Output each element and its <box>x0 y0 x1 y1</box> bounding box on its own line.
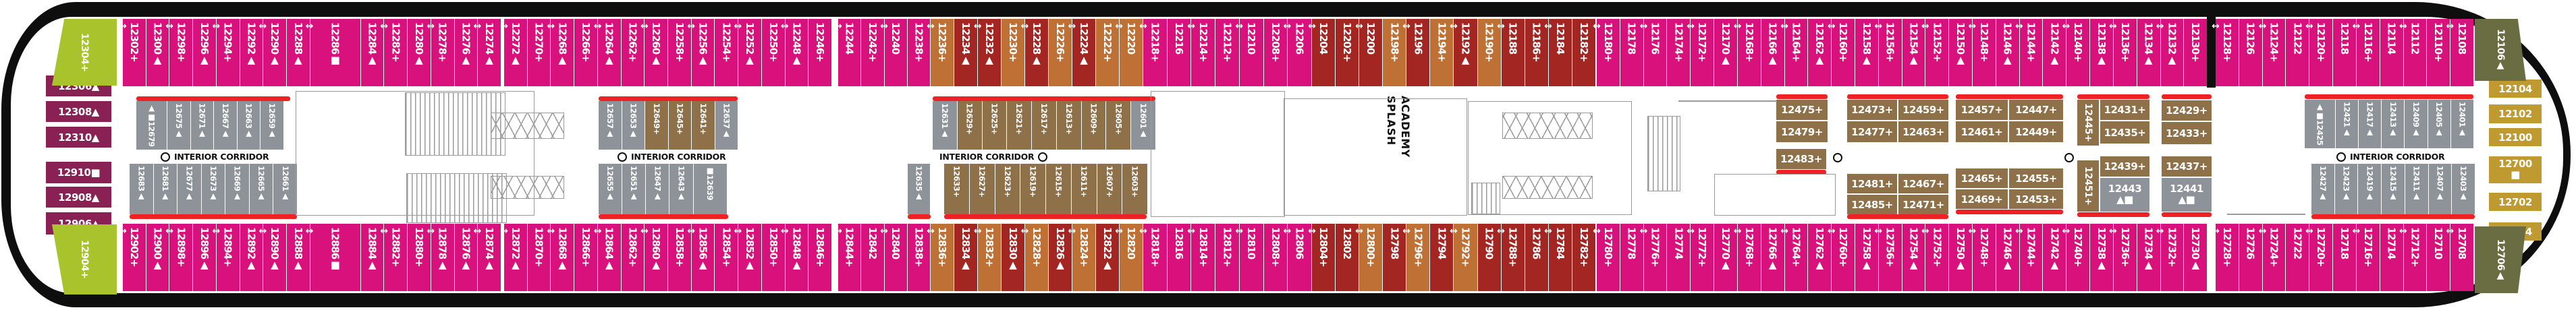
cabin-12108[interactable]: 12108 <box>2450 19 2473 86</box>
cabin-12677[interactable]: 12677▲ <box>177 164 201 214</box>
cabin-12184[interactable]: 12184 <box>1549 19 1572 86</box>
cabin-12613[interactable]: 12613+ <box>1057 101 1081 150</box>
cabin-12481[interactable]: 12481+ <box>1847 174 1897 193</box>
cabin-12421[interactable]: 12421▲ <box>2336 100 2358 148</box>
cabin-12896[interactable]: 12896▲ <box>193 224 216 291</box>
cabin-12170[interactable]: 12170▲ <box>1714 19 1737 86</box>
cabin-12194[interactable]: 12194+ <box>1430 19 1453 86</box>
cabin-12794[interactable]: 12794 <box>1430 224 1453 291</box>
cabin-12776[interactable]: 12776+ <box>1644 224 1667 291</box>
cabin-12190[interactable]: 12190+ <box>1478 19 1501 86</box>
cabin-12134[interactable]: 12134▲ <box>2137 19 2160 86</box>
cabin-12224[interactable]: 12224▲ <box>1072 19 1095 86</box>
cabin-12260[interactable]: 12260▲ <box>645 19 667 86</box>
cabin-12812[interactable]: 12812+ <box>1215 224 1239 291</box>
cabin-12667[interactable]: 12667▲ <box>214 101 237 150</box>
cabin-12782[interactable]: 12782+ <box>1572 224 1595 291</box>
cabin-12629[interactable]: 12629+ <box>958 101 982 150</box>
cabin-number: 12625+ <box>989 101 999 135</box>
cabin-12182[interactable]: 12182+ <box>1572 19 1595 86</box>
cabin-12431[interactable]: 12431+ <box>2100 100 2149 120</box>
cabin-12485[interactable]: 12485+ <box>1847 195 1897 214</box>
cabin-12258[interactable]: 12258+ <box>668 19 691 86</box>
cabin-12818[interactable]: 12818+ <box>1143 224 1167 291</box>
cabin-12218[interactable]: 12218+ <box>1143 19 1167 86</box>
cabin-12663[interactable]: 12663▲ <box>238 101 261 150</box>
cabin-12878[interactable]: 12878▲ <box>431 224 454 291</box>
cabin-12730[interactable]: 12730▲ <box>2184 224 2207 291</box>
cabin-12774[interactable]: 12774 <box>1667 224 1690 291</box>
cabin-12453[interactable]: 12453+ <box>2009 189 2063 209</box>
cabin-12766[interactable]: 12766▲ <box>1761 224 1784 291</box>
cabin-12178[interactable]: 12178 <box>1620 19 1643 86</box>
cabin-12657[interactable]: 12657▲ <box>599 101 622 150</box>
cabin-12643[interactable]: 12643▲ <box>669 164 692 214</box>
cabin-12764[interactable]: 12764+ <box>1785 224 1808 291</box>
cabin-12144[interactable]: 12144+ <box>2020 19 2043 86</box>
cabin-12300[interactable]: 12300▲ <box>146 19 169 86</box>
cabin-12204[interactable]: 12204 <box>1312 19 1335 86</box>
cabin-12834[interactable]: 12834▲ <box>954 224 977 291</box>
cabin-12451[interactable]: 12451+ <box>2077 160 2099 212</box>
cabin-12756[interactable]: 12756+ <box>1879 224 1902 291</box>
cabin-12810[interactable]: 12810 <box>1240 224 1263 291</box>
cabin-12814[interactable]: 12814+ <box>1191 224 1215 291</box>
cabin-12407[interactable]: 12407▲ <box>2429 164 2452 214</box>
cabin-12888[interactable]: 12888▲ <box>287 224 310 291</box>
cabin-12718[interactable]: 12718 <box>2333 224 2356 291</box>
cabin-12186[interactable]: 12186+ <box>1525 19 1548 86</box>
cabin-12423[interactable]: 12423▲ <box>2335 164 2358 214</box>
cabin-12732[interactable]: 12732+ <box>2161 224 2184 291</box>
cabin-12126[interactable]: 12126 <box>2239 19 2262 86</box>
cabin-12246[interactable]: 12246+ <box>809 19 831 86</box>
corridor-red-bar <box>2305 94 2473 99</box>
cabin-12822[interactable]: 12822▲ <box>1096 224 1119 291</box>
cabin-number: 12401▲ <box>2457 100 2467 136</box>
cabin-12437[interactable]: 12437+ <box>2162 156 2212 177</box>
cabin-12708[interactable]: 12708 <box>2450 224 2473 291</box>
cabin-12136[interactable]: 12136+ <box>2114 19 2137 86</box>
cabin-12902[interactable]: 12902+ <box>123 224 146 291</box>
cabin-12268[interactable]: 12268▲ <box>551 19 574 86</box>
cabin-12786[interactable]: 12786 <box>1525 224 1548 291</box>
cabin-12892[interactable]: 12892▲ <box>240 224 263 291</box>
cabin-12796[interactable]: 12796+ <box>1406 224 1429 291</box>
cabin-12866[interactable]: 12866+ <box>574 224 597 291</box>
cabin-12471[interactable]: 12471+ <box>1898 195 1948 214</box>
cabin-12710[interactable]: 12710 <box>2427 224 2450 291</box>
cabin-12230[interactable]: 12230+ <box>1002 19 1024 86</box>
cabin-12884[interactable]: 12884▲ <box>361 224 384 291</box>
cabin-12457[interactable]: 12457+ <box>1956 100 2008 120</box>
cabin-12748[interactable]: 12748+ <box>1973 224 1996 291</box>
cabin-12872[interactable]: 12872▲ <box>504 224 527 291</box>
cabin-12172[interactable]: 12172+ <box>1691 19 1714 86</box>
cabin-12196[interactable]: 12196 <box>1406 19 1429 86</box>
cabin-12128[interactable]: 12128+ <box>2216 19 2239 86</box>
cabin-12605[interactable]: 12605+ <box>1106 101 1130 150</box>
cabin-12724[interactable]: 12724+ <box>2263 224 2286 291</box>
cabin-12198[interactable]: 12198+ <box>1383 19 1406 86</box>
cabin-12858[interactable]: 12858+ <box>668 224 691 291</box>
cabin-12762[interactable]: 12762▲ <box>1808 224 1831 291</box>
cabin-12270[interactable]: 12270+ <box>528 19 551 86</box>
cabin-12800[interactable]: 12800+ <box>1359 224 1382 291</box>
cabin-12840[interactable]: 12840 <box>885 224 907 291</box>
cabin-12780[interactable]: 12780+ <box>1597 224 1620 291</box>
cabin-12140[interactable]: 12140+ <box>2066 19 2089 86</box>
cabin-12617[interactable]: 12617+ <box>1032 101 1056 150</box>
cabin-12280[interactable]: 12280▲ <box>408 19 431 86</box>
cabin-12900[interactable]: 12900▲ <box>146 224 169 291</box>
cabin-12110[interactable]: 12110+ <box>2427 19 2450 86</box>
cabin-12802[interactable]: 12802 <box>1336 224 1359 291</box>
cabin-12467[interactable]: 12467+ <box>1898 174 1948 193</box>
cabin-12256[interactable]: 12256▲ <box>692 19 715 86</box>
cabin-12754[interactable]: 12754▲ <box>1902 224 1925 291</box>
cabin-12148[interactable]: 12148+ <box>1973 19 1996 86</box>
cabin-12874[interactable]: 12874▲ <box>478 224 501 291</box>
cabin-12302[interactable]: 12302+ <box>123 19 146 86</box>
cabin-12104[interactable]: 12104 <box>2489 80 2542 98</box>
cabin-12653[interactable]: 12653▲ <box>622 101 645 150</box>
cabin-12214[interactable]: 12214+ <box>1191 19 1215 86</box>
cabin-12433[interactable]: 12433+ <box>2162 122 2212 144</box>
cabin-12760[interactable]: 12760+ <box>1832 224 1855 291</box>
cabin-12310[interactable]: 12310▲ <box>46 127 111 148</box>
cabin-12862[interactable]: 12862+ <box>622 224 645 291</box>
cabin-12308[interactable]: 12308▲ <box>46 101 111 122</box>
cabin-12469[interactable]: 12469+ <box>1956 189 2008 209</box>
cabin-12106[interactable]: 12106▲ <box>2475 19 2526 81</box>
corridor-red-bar <box>1956 210 2063 214</box>
cabin-12868[interactable]: 12868▲ <box>551 224 574 291</box>
cabin-12122[interactable]: 12122 <box>2286 19 2309 86</box>
cabin-12860[interactable]: 12860▲ <box>645 224 667 291</box>
cabin-12228[interactable]: 12228▲ <box>1025 19 1048 86</box>
cabin-12240[interactable]: 12240 <box>885 19 907 86</box>
cabin-12645[interactable]: 12645+ <box>669 101 692 150</box>
cabin-12675[interactable]: 12675▲ <box>167 101 190 150</box>
cabin-12455[interactable]: 12455+ <box>2009 168 2063 188</box>
cabin-12607[interactable]: 12607+ <box>1097 164 1122 214</box>
cabin-12292[interactable]: 12292▲ <box>240 19 263 86</box>
cabin-12405[interactable]: 12405▲ <box>2428 100 2450 148</box>
cabin-12734[interactable]: 12734▲ <box>2137 224 2160 291</box>
cabin-12758[interactable]: 12758▲ <box>1855 224 1878 291</box>
cabin-12647[interactable]: 12647▲ <box>646 164 669 214</box>
cabin-12679[interactable]: ▲■12679 <box>136 101 167 150</box>
cabin-12142[interactable]: 12142▲ <box>2043 19 2066 86</box>
cabin-12100[interactable]: 12100 <box>2489 128 2542 146</box>
cabin-12282[interactable]: 12282+ <box>384 19 407 86</box>
cabin-12651[interactable]: 12651▲ <box>622 164 645 214</box>
cabin-12908[interactable]: 12908▲ <box>46 187 111 208</box>
cabin-12254[interactable]: 12254+ <box>715 19 738 86</box>
cabin-12459[interactable]: 12459+ <box>1898 100 1948 120</box>
cabin-12435[interactable]: 12435+ <box>2100 121 2149 144</box>
cabin-12641[interactable]: 12641+ <box>692 101 715 150</box>
cabin-12188[interactable]: 12188 <box>1502 19 1525 86</box>
cabin-12156[interactable]: 12156+ <box>1879 19 1902 86</box>
cabin-12838[interactable]: 12838+ <box>908 224 930 291</box>
cabin-12206[interactable]: 12206 <box>1288 19 1311 86</box>
cabin-12200[interactable]: 12200 <box>1359 19 1382 86</box>
cabin-12631[interactable]: 12631▲ <box>933 101 957 150</box>
cabin-12124[interactable]: 12124+ <box>2263 19 2286 86</box>
cabin-12250[interactable]: 12250+ <box>762 19 785 86</box>
cabin-12669[interactable]: 12669▲ <box>225 164 249 214</box>
cabin-12138[interactable]: 12138▲ <box>2090 19 2113 86</box>
cabin-12483[interactable]: 12483+ <box>1776 149 1826 169</box>
cabin-12894[interactable]: 12894+ <box>217 224 240 291</box>
cabin-12210[interactable]: 12210 <box>1240 19 1263 86</box>
cabin-number: 12766▲ <box>1767 224 1779 270</box>
cabin-12768[interactable]: 12768+ <box>1738 224 1761 291</box>
cabin-12439[interactable]: 12439+ <box>2100 156 2149 177</box>
cabin-12864[interactable]: 12864▲ <box>598 224 621 291</box>
cabin-number: 12742▲ <box>2048 224 2060 270</box>
cabin-12655[interactable]: 12655▲ <box>599 164 622 214</box>
cabin-12174[interactable]: 12174+ <box>1667 19 1690 86</box>
cabin-12876[interactable]: 12876▲ <box>455 224 478 291</box>
cabin-12162[interactable]: 12162▲ <box>1808 19 1831 86</box>
cabin-12441[interactable]: 12441▲■ <box>2162 178 2212 212</box>
cabin-12286[interactable]: 12286■ <box>310 19 360 86</box>
cabin-12746[interactable]: 12746▲ <box>1996 224 2019 291</box>
cabin-12146[interactable]: 12146▲ <box>1996 19 2019 86</box>
cabin-12234[interactable]: 12234▲ <box>954 19 977 86</box>
cabin-12830[interactable]: 12830▲ <box>1002 224 1024 291</box>
cabin-number: 12114 <box>2386 19 2398 54</box>
cabin-12232[interactable]: 12232▲ <box>978 19 1001 86</box>
cabin-12742[interactable]: 12742▲ <box>2043 224 2066 291</box>
cabin-12447[interactable]: 12447+ <box>2009 100 2063 120</box>
cabin-12244[interactable]: 12244 <box>838 19 860 86</box>
cabin-12284[interactable]: 12284▲ <box>361 19 384 86</box>
cabin-12611[interactable]: 12611+ <box>1072 164 1097 214</box>
cabin-12639[interactable]: ■12639 <box>694 164 727 214</box>
cabin-12164[interactable]: 12164+ <box>1785 19 1808 86</box>
cabin-12826[interactable]: 12826▲ <box>1049 224 1072 291</box>
cabin-12222[interactable]: 12222+ <box>1096 19 1119 86</box>
cabin-12716[interactable]: 12716+ <box>2357 224 2380 291</box>
cabin-12726[interactable]: 12726 <box>2239 224 2262 291</box>
cabin-12425[interactable]: ▲■12425 <box>2305 100 2335 148</box>
cabin-12744[interactable]: 12744+ <box>2020 224 2043 291</box>
cabin-12463[interactable]: 12463+ <box>1898 121 1948 142</box>
cabin-12238[interactable]: 12238+ <box>908 19 930 86</box>
cabin-12778[interactable]: 12778 <box>1620 224 1643 291</box>
cabin-12832[interactable]: 12832+ <box>978 224 1001 291</box>
cabin-12683[interactable]: 12683▲ <box>130 164 153 214</box>
cabin-12120[interactable]: 12120+ <box>2309 19 2332 86</box>
cabin-12784[interactable]: 12784 <box>1549 224 1572 291</box>
cabin-12264[interactable]: 12264▲ <box>598 19 621 86</box>
cabin-12886[interactable]: 12886■ <box>310 224 360 291</box>
cabin-12276[interactable]: 12276▲ <box>455 19 478 86</box>
cabin-12792[interactable]: 12792+ <box>1454 224 1477 291</box>
cabin-12417[interactable]: 12417▲ <box>2359 100 2381 148</box>
cabin-12681[interactable]: 12681▲ <box>154 164 177 214</box>
cabin-12890[interactable]: 12890▲ <box>263 224 286 291</box>
cabin-12216[interactable]: 12216 <box>1168 19 1191 86</box>
cabin-12722[interactable]: 12722 <box>2286 224 2309 291</box>
cabin-12475[interactable]: 12475+ <box>1776 100 1828 120</box>
cabin-12154[interactable]: 12154▲ <box>1902 19 1925 86</box>
cabin-12772[interactable]: 12772+ <box>1691 224 1714 291</box>
cabin-12633[interactable]: 12633+ <box>944 164 969 214</box>
cabin-12714[interactable]: 12714 <box>2380 224 2403 291</box>
cabin-12150[interactable]: 12150▲ <box>1949 19 1972 86</box>
cabin-12728[interactable]: 12728+ <box>2216 224 2239 291</box>
cabin-12427[interactable]: 12427▲ <box>2311 164 2334 214</box>
cabin-12700[interactable]: 12700■ <box>2489 156 2542 183</box>
cabin-12290[interactable]: 12290▲ <box>263 19 286 86</box>
cabin-12882[interactable]: 12882+ <box>384 224 407 291</box>
cabin-12429[interactable]: 12429+ <box>2162 100 2212 121</box>
cabin-12160[interactable]: 12160+ <box>1832 19 1855 86</box>
cabin-12445[interactable]: 12445+ <box>2077 100 2099 146</box>
cabin-12808[interactable]: 12808+ <box>1264 224 1288 291</box>
cabin-12625[interactable]: 12625+ <box>983 101 1007 150</box>
cabin-12461[interactable]: 12461+ <box>1956 121 2008 142</box>
cabin-12477[interactable]: 12477+ <box>1847 121 1897 142</box>
cabin-12637[interactable]: 12637▲ <box>715 101 738 150</box>
cabin-12294[interactable]: 12294+ <box>217 19 240 86</box>
cabin-12296[interactable]: 12296▲ <box>193 19 216 86</box>
cabin-12615[interactable]: 12615+ <box>1046 164 1071 214</box>
cabin-12479[interactable]: 12479+ <box>1776 121 1828 142</box>
cabin-12750[interactable]: 12750▲ <box>1949 224 1972 291</box>
cabin-12413[interactable]: 12413▲ <box>2382 100 2404 148</box>
cabin-12192[interactable]: 12192▲ <box>1454 19 1477 86</box>
cabin-12220[interactable]: 12220 <box>1120 19 1143 86</box>
cabin-12415[interactable]: 12415▲ <box>2382 164 2405 214</box>
cabin-12659[interactable]: 12659▲ <box>261 101 283 150</box>
cabin-12770[interactable]: 12770▲ <box>1714 224 1737 291</box>
cabin-12168[interactable]: 12168+ <box>1738 19 1761 86</box>
cabin-12824[interactable]: 12824+ <box>1072 224 1095 291</box>
cabin-12130[interactable]: 12130+ <box>2184 19 2207 86</box>
cabin-12720[interactable]: 12720+ <box>2309 224 2332 291</box>
cabin-12816[interactable]: 12816 <box>1168 224 1191 291</box>
cabin-12114[interactable]: 12114 <box>2380 19 2403 86</box>
cabin-12852[interactable]: 12852▲ <box>738 224 761 291</box>
cabin-12473[interactable]: 12473+ <box>1847 100 1897 120</box>
cabin-12880[interactable]: 12880+ <box>408 224 431 291</box>
cabin-12116[interactable]: 12116+ <box>2357 19 2380 86</box>
cabin-12820[interactable]: 12820 <box>1120 224 1143 291</box>
cabin-number: 12768+ <box>1743 224 1755 267</box>
cabin-12465[interactable]: 12465+ <box>1956 168 2008 188</box>
cabin-12635[interactable]: 12635▲ <box>908 164 930 214</box>
cabin-12649[interactable]: 12649+ <box>645 101 668 150</box>
cabin-12272[interactable]: 12272▲ <box>504 19 527 86</box>
cabin-12274[interactable]: 12274▲ <box>478 19 501 86</box>
cabin-12242[interactable]: 12242+ <box>861 19 883 86</box>
cabin-12738[interactable]: 12738▲ <box>2090 224 2113 291</box>
cabin-12898[interactable]: 12898+ <box>169 224 192 291</box>
cabin-12102[interactable]: 12102 <box>2489 104 2542 123</box>
cabin-12236[interactable]: 12236+ <box>931 19 954 86</box>
cabin-12288[interactable]: 12288▲ <box>287 19 310 86</box>
cabin-12619[interactable]: 12619+ <box>1020 164 1045 214</box>
cabin-12202[interactable]: 12202+ <box>1336 19 1359 86</box>
cabin-12449[interactable]: 12449+ <box>2009 121 2063 142</box>
cabin-12842[interactable]: 12842 <box>861 224 883 291</box>
cabin-12846[interactable]: 12846+ <box>809 224 831 291</box>
cabin-12409[interactable]: 12409▲ <box>2405 100 2427 148</box>
cabin-12661[interactable]: 12661▲ <box>273 164 297 214</box>
cabin-12262[interactable]: 12262+ <box>622 19 645 86</box>
cabin-12609[interactable]: 12609+ <box>1082 101 1106 150</box>
cabin-12702[interactable]: 12702 <box>2489 193 2542 211</box>
cabin-12706[interactable]: 12706▲ <box>2475 226 2526 293</box>
cabin-12870[interactable]: 12870+ <box>528 224 551 291</box>
cabin-12403[interactable]: 12403▲ <box>2452 164 2475 214</box>
cabin-12401[interactable]: 12401▲ <box>2451 100 2473 148</box>
cabin-12266[interactable]: 12266+ <box>574 19 597 86</box>
cabin-12621[interactable]: 12621+ <box>1007 101 1031 150</box>
cabin-12166[interactable]: 12166▲ <box>1761 19 1784 86</box>
cabin-12798[interactable]: 12798 <box>1383 224 1406 291</box>
cabin-12226[interactable]: 12226+ <box>1049 19 1072 86</box>
cabin-12252[interactable]: 12252▲ <box>738 19 761 86</box>
cabin-12152[interactable]: 12152+ <box>1925 19 1948 86</box>
cabin-12790[interactable]: 12790 <box>1478 224 1501 291</box>
cabin-12854[interactable]: 12854+ <box>715 224 738 291</box>
cabin-12623[interactable]: 12623+ <box>995 164 1020 214</box>
cabin-12212[interactable]: 12212+ <box>1215 19 1239 86</box>
cabin-12752[interactable]: 12752+ <box>1925 224 1948 291</box>
cabin-12910[interactable]: 12910■ <box>46 162 111 183</box>
cabin-12673[interactable]: 12673▲ <box>202 164 225 214</box>
cabin-12208[interactable]: 12208+ <box>1264 19 1288 86</box>
cabin-12665[interactable]: 12665▲ <box>250 164 273 214</box>
cabin-12248[interactable]: 12248▲ <box>786 19 809 86</box>
cabin-12850[interactable]: 12850+ <box>762 224 785 291</box>
cabin-12844[interactable]: 12844+ <box>838 224 860 291</box>
cabin-12419[interactable]: 12419▲ <box>2358 164 2381 214</box>
cabin-12736[interactable]: 12736+ <box>2114 224 2137 291</box>
cabin-12828[interactable]: 12828+ <box>1025 224 1048 291</box>
cabin-12836[interactable]: 12836+ <box>931 224 954 291</box>
cabin-12132[interactable]: 12132▲ <box>2161 19 2184 86</box>
cabin-12180[interactable]: 12180+ <box>1597 19 1620 86</box>
cabin-12848[interactable]: 12848▲ <box>786 224 809 291</box>
cabin-12856[interactable]: 12856▲ <box>692 224 715 291</box>
cabin-12298[interactable]: 12298+ <box>169 19 192 86</box>
cabin-12806[interactable]: 12806 <box>1288 224 1311 291</box>
cabin-12671[interactable]: 12671▲ <box>191 101 214 150</box>
cabin-12740[interactable]: 12740+ <box>2066 224 2089 291</box>
cabin-12712[interactable]: 12712+ <box>2404 224 2427 291</box>
cabin-12158[interactable]: 12158▲ <box>1855 19 1878 86</box>
cabin-12176[interactable]: 12176 <box>1644 19 1667 86</box>
cabin-12804[interactable]: 12804+ <box>1312 224 1335 291</box>
cabin-12603[interactable]: 12603+ <box>1122 164 1147 214</box>
cabin-12627[interactable]: 12627+ <box>970 164 995 214</box>
cabin-12112[interactable]: 12112 <box>2404 19 2427 86</box>
cabin-12278[interactable]: 12278+ <box>431 19 454 86</box>
cabin-12411[interactable]: 12411▲ <box>2405 164 2428 214</box>
cabin-12788[interactable]: 12788+ <box>1502 224 1525 291</box>
cabin-12443[interactable]: 12443▲■ <box>2100 178 2149 212</box>
cabin-12118[interactable]: 12118 <box>2333 19 2356 86</box>
cabin-number: 12158▲ <box>1861 19 1873 65</box>
